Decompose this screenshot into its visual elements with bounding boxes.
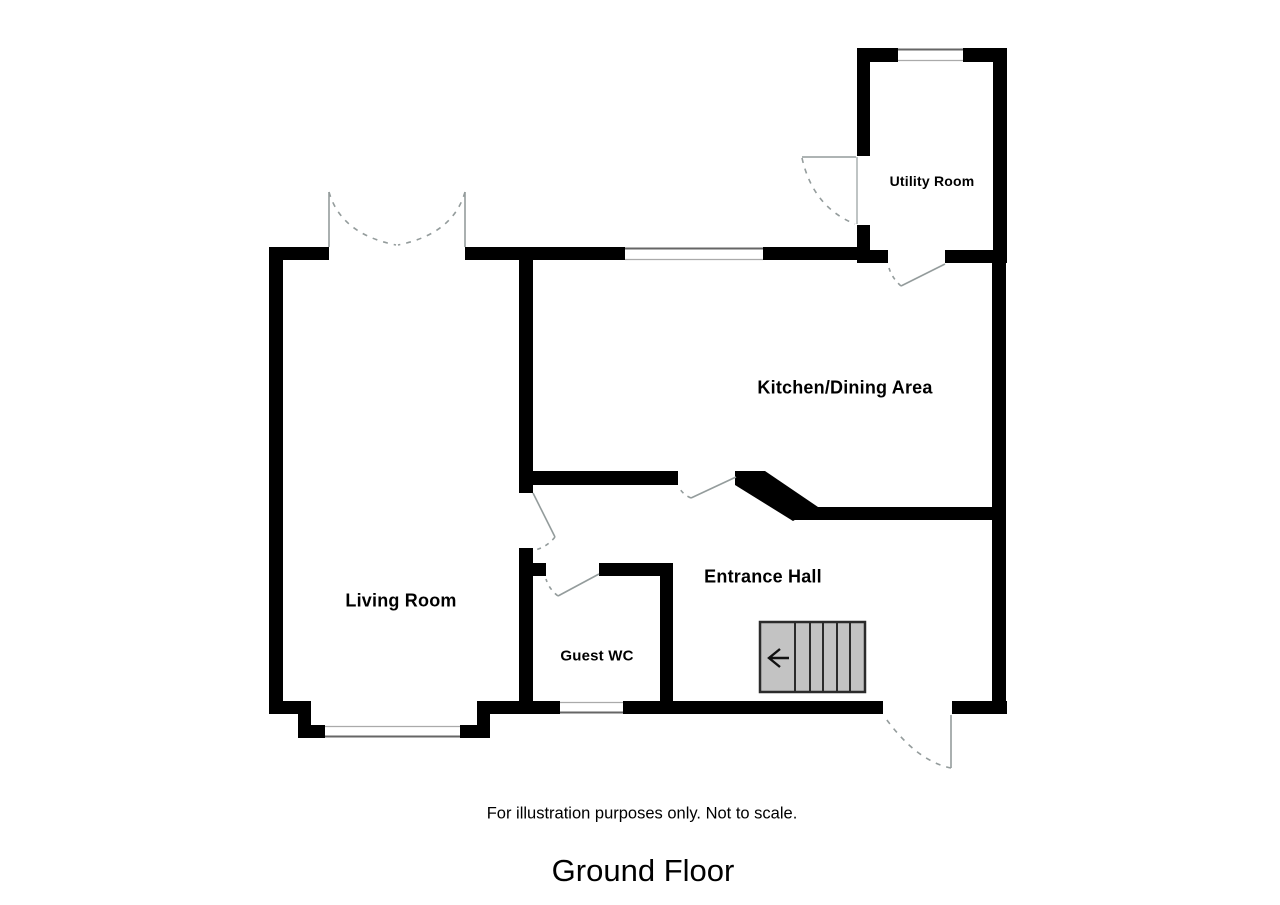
wall-utility-left-lower xyxy=(857,225,870,263)
wall-living-kitchen-shared-upper xyxy=(519,247,533,493)
wall-utility-left-upper xyxy=(857,48,870,156)
room-label-utility-room: Utility Room xyxy=(890,173,975,189)
door-hall-to-kitchen xyxy=(679,477,736,498)
wall-hall-kitchen-upper xyxy=(519,471,678,485)
door-utility-external xyxy=(802,157,857,224)
room-label-entrance-hall: Entrance Hall xyxy=(704,567,822,588)
window-guest-wc xyxy=(560,701,623,714)
door-front-entrance xyxy=(884,715,951,768)
door-living-to-hall xyxy=(533,493,555,550)
wall-living-left xyxy=(269,247,283,714)
wall-living-kitchen-shared-lower xyxy=(519,548,533,714)
room-label-kitchen-dining: Kitchen/Dining Area xyxy=(757,378,932,399)
wall-hall-kitchen-diagonal xyxy=(735,471,818,521)
wall-utility-right xyxy=(993,48,1007,263)
wall-hall-right xyxy=(992,507,1006,714)
door-french-living xyxy=(329,192,465,247)
floor-title: Ground Floor xyxy=(552,853,735,889)
wall-kitchen-top-right xyxy=(763,247,858,260)
wall-wc-right xyxy=(660,563,673,714)
room-label-living-room: Living Room xyxy=(345,591,456,612)
door-guest-wc xyxy=(546,574,599,596)
illustration-disclaimer: For illustration purposes only. Not to s… xyxy=(487,805,798,824)
wall-kitchen-bottom-right xyxy=(793,507,1006,520)
floor-plan-drawing xyxy=(0,0,1280,905)
stairs xyxy=(760,622,865,692)
wall-living-top-left xyxy=(269,247,329,260)
wall-wc-top-stub xyxy=(533,563,546,576)
window-kitchen xyxy=(625,247,763,260)
room-label-guest-wc: Guest WC xyxy=(560,648,633,665)
floor-plan-page: Living Room Kitchen/Dining Area Utility … xyxy=(0,0,1280,905)
door-kitchen-to-utility xyxy=(889,264,945,286)
wall-kitchen-right xyxy=(992,250,1006,520)
window-utility xyxy=(898,48,963,62)
wall-bottom-mid xyxy=(477,701,560,714)
window-living-bay xyxy=(325,725,460,738)
wall-living-top-right-kitchen-left xyxy=(465,247,625,260)
wall-bay-front-left xyxy=(298,725,325,738)
